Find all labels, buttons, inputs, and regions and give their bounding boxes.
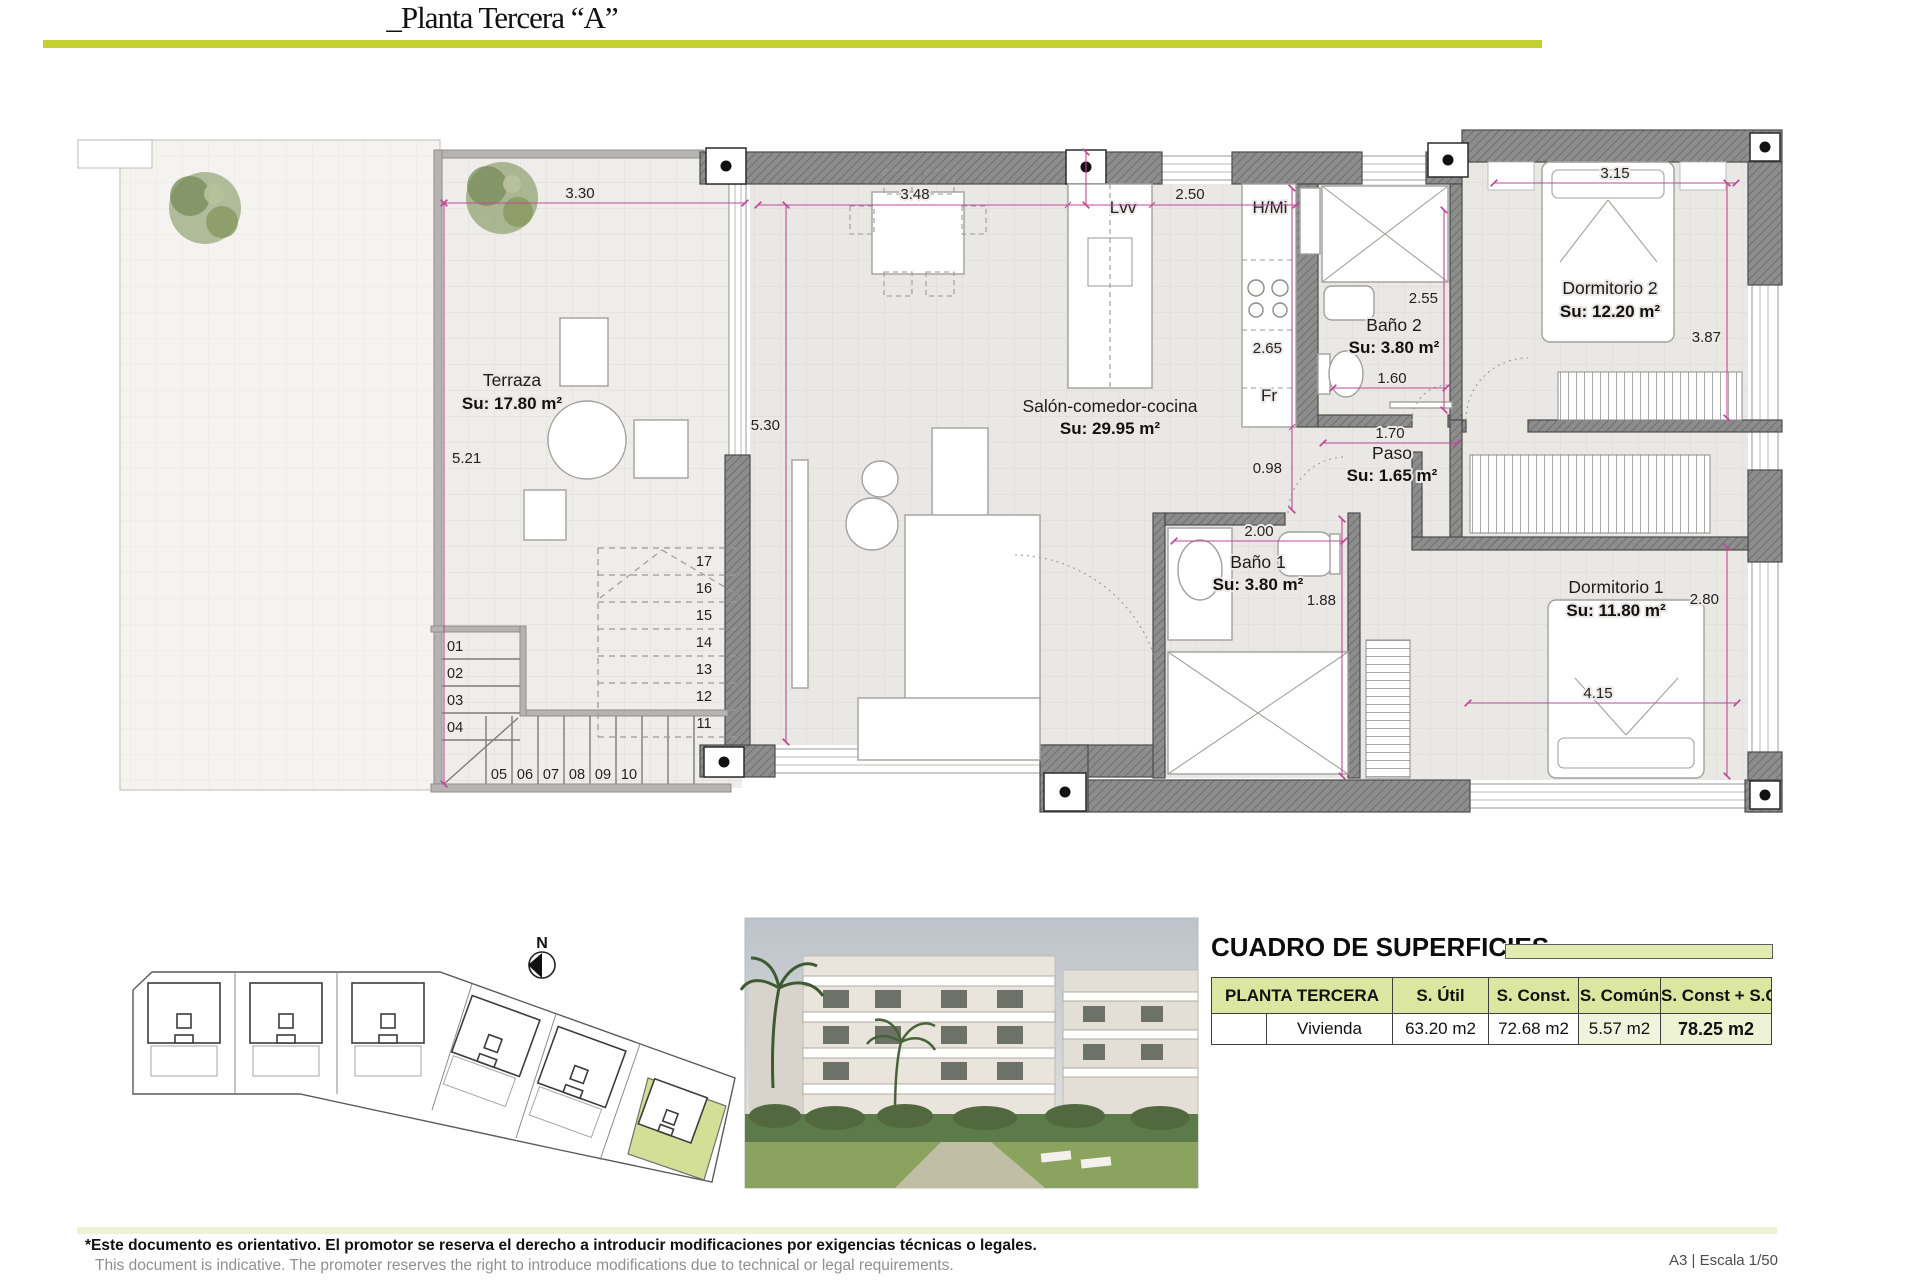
towel-bar xyxy=(1390,402,1452,408)
room-area: Su: 11.80 m² xyxy=(1566,601,1666,620)
plan-sheet: _Planta Tercera “A” xyxy=(0,0,1920,1280)
floor-plan: Terraza Su: 17.80 m² xyxy=(78,130,1782,812)
roof-notch xyxy=(78,140,152,168)
col-s-const: S. Const. xyxy=(1489,978,1579,1014)
wardrobe xyxy=(1558,372,1742,420)
site-plan: N xyxy=(133,935,735,1182)
shelving xyxy=(1366,640,1410,778)
stair-number: 17 xyxy=(696,554,712,570)
stair-number: 03 xyxy=(447,693,463,709)
sheet-scale-info: A3 | Escala 1/50 xyxy=(1558,1252,1778,1269)
room-label: Terraza xyxy=(483,370,542,390)
value-s-util: 63.20 m2 xyxy=(1393,1014,1489,1045)
room-area: Su: 17.80 m² xyxy=(462,394,562,413)
window xyxy=(729,184,746,455)
window xyxy=(1162,156,1232,180)
stair-number: 07 xyxy=(543,767,559,783)
stair-number: 10 xyxy=(621,767,637,783)
row-index-cell xyxy=(1212,1014,1267,1045)
dim-label: 2.80 xyxy=(1690,591,1719,608)
side-table xyxy=(862,461,898,497)
dim-label: 3.30 xyxy=(565,185,594,202)
dim-label: 1.70 xyxy=(1375,425,1404,442)
dim-label: 1.88 xyxy=(1307,592,1336,609)
oven-microwave-label: H/Mi xyxy=(1253,198,1288,217)
col-planta: PLANTA TERCERA xyxy=(1212,978,1393,1014)
stair-number: 02 xyxy=(447,666,463,682)
dim-label: 3.15 xyxy=(1600,165,1629,182)
room-label: Dormitorio 1 xyxy=(1568,577,1663,597)
terrace-chair xyxy=(524,490,566,540)
photo-render xyxy=(741,918,1198,1188)
dim-label: 3.87 xyxy=(1692,329,1721,346)
window xyxy=(1470,784,1745,808)
floor-plan-canvas: Terraza Su: 17.80 m² xyxy=(0,0,1920,1280)
toilet xyxy=(1329,351,1363,397)
stair-number: 08 xyxy=(569,767,585,783)
stair-number: 16 xyxy=(696,581,712,597)
side-table xyxy=(846,498,898,550)
room-area: Su: 1.65 m² xyxy=(1347,466,1438,485)
room-label: Salón-comedor-cocina xyxy=(1022,396,1197,416)
toilet-tank xyxy=(1330,534,1340,574)
footer-accent-rule xyxy=(77,1227,1777,1234)
tree-icon xyxy=(466,162,538,234)
room-area: Su: 29.95 m² xyxy=(1060,419,1160,438)
col-s-util: S. Útil xyxy=(1393,978,1489,1014)
surfaces-title: CUADRO DE SUPERFICIES xyxy=(1211,932,1549,963)
surfaces-data-row: Vivienda 63.20 m2 72.68 m2 5.57 m2 78.25… xyxy=(1212,1014,1772,1045)
surfaces-accent-bar xyxy=(1505,944,1773,959)
dim-label: 5.30 xyxy=(751,417,780,434)
col-s-comun: S. Común xyxy=(1579,978,1661,1014)
stair-number: 14 xyxy=(696,635,712,651)
dim-label: 2.00 xyxy=(1244,523,1273,540)
dim-label: 5.21 xyxy=(452,450,481,467)
dishwasher-label: Lvv xyxy=(1110,198,1137,217)
terrace-chair xyxy=(560,318,608,386)
room-label: Dormitorio 2 xyxy=(1562,278,1657,298)
oven-niche xyxy=(1300,188,1320,254)
stair-number: 12 xyxy=(696,689,712,705)
stair-number: 04 xyxy=(447,720,463,736)
dim-label: 2.55 xyxy=(1409,290,1438,307)
stair-number: 05 xyxy=(491,767,507,783)
stair-number: 11 xyxy=(696,716,711,732)
window xyxy=(1752,562,1778,752)
row-label: Vivienda xyxy=(1267,1014,1393,1045)
fridge-label: Fr xyxy=(1261,386,1277,405)
window xyxy=(1362,156,1426,180)
value-s-const: 72.68 m2 xyxy=(1489,1014,1579,1045)
disclaimer-es: *Este documento es orientativo. El promo… xyxy=(85,1237,1037,1255)
value-total: 78.25 m2 xyxy=(1661,1014,1772,1045)
stair-number: 09 xyxy=(595,767,611,783)
north-label: N xyxy=(536,935,548,952)
room-area: Su: 12.20 m² xyxy=(1560,302,1660,321)
value-s-comun: 5.57 m2 xyxy=(1579,1014,1661,1045)
dim-label: 4.15 xyxy=(1583,685,1612,702)
room-area: Su: 3.80 m² xyxy=(1213,575,1304,594)
toilet xyxy=(1278,532,1332,576)
stair-number: 13 xyxy=(696,662,712,678)
wardrobe xyxy=(1470,455,1710,533)
room-label: Paso xyxy=(1372,443,1412,463)
surfaces-header-row: PLANTA TERCERA S. Útil S. Const. S. Comú… xyxy=(1212,978,1772,1014)
bed xyxy=(1548,600,1704,778)
room-label: Baño 2 xyxy=(1366,315,1421,335)
dim-label: 2.65 xyxy=(1253,340,1282,357)
sofa xyxy=(905,515,1040,705)
room-area: Su: 3.80 m² xyxy=(1349,338,1440,357)
dim-label: 1.60 xyxy=(1377,370,1406,387)
terrace-chair xyxy=(634,420,688,478)
north-arrow: N xyxy=(528,935,555,978)
site-buildings xyxy=(148,983,707,1143)
tv-unit xyxy=(792,460,808,688)
room-label: Baño 1 xyxy=(1230,552,1285,572)
dim-label: 2.50 xyxy=(1175,186,1204,203)
surfaces-table: PLANTA TERCERA S. Útil S. Const. S. Comú… xyxy=(1211,977,1772,1045)
dim-label: 3.48 xyxy=(900,186,929,203)
stair-number: 15 xyxy=(696,608,712,624)
stair-number: 06 xyxy=(517,767,533,783)
disclaimer-en: This document is indicative. The promote… xyxy=(95,1257,954,1275)
sofa-chaise xyxy=(858,698,1040,760)
tree-icon xyxy=(169,172,241,244)
dim-label: 0.98 xyxy=(1253,460,1282,477)
toilet xyxy=(1318,354,1330,394)
window xyxy=(1752,285,1778,470)
stair-number: 01 xyxy=(447,639,463,655)
col-s-const-sc: S. Const + S.C xyxy=(1661,978,1772,1014)
